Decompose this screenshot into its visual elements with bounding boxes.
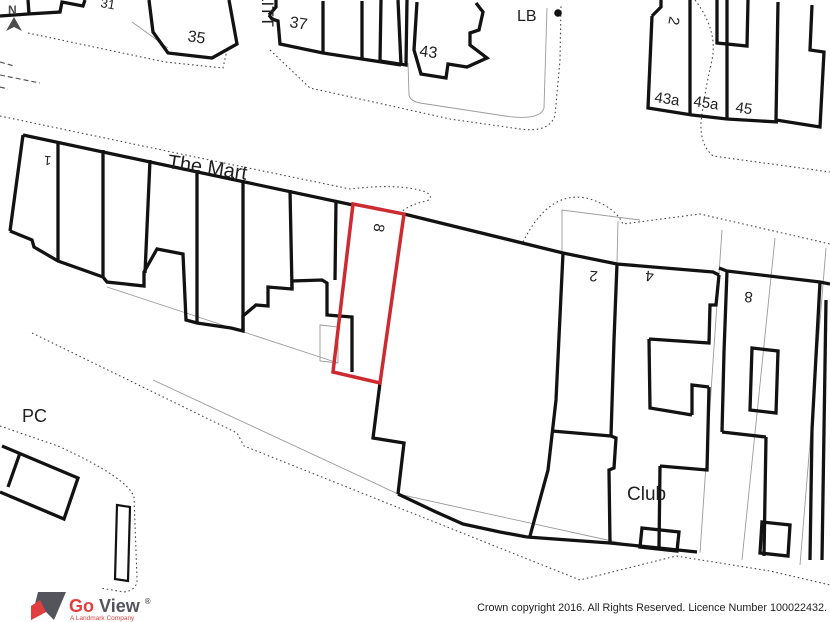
building-label-1: 1 bbox=[43, 153, 52, 169]
building-label-37: 37 bbox=[288, 14, 308, 34]
street-labels: The Mart LITT bbox=[166, 0, 277, 185]
map-labels: 31 35 37 43 LB 2 43a 45a 45 1 8 2 4 8 Cl… bbox=[22, 0, 754, 505]
registered-mark: ® bbox=[145, 597, 151, 606]
narrow-building bbox=[115, 505, 130, 581]
building-label-45: 45 bbox=[734, 99, 753, 118]
north-letter: N bbox=[8, 3, 17, 17]
red-plot-outline bbox=[333, 204, 404, 383]
building-label-45a: 45a bbox=[692, 93, 720, 113]
building-label-4: 4 bbox=[645, 267, 655, 285]
poi-label-lb: LB bbox=[517, 8, 537, 25]
goview-tagline: A Landmark Company bbox=[70, 615, 135, 622]
map-canvas: N The Mart LITT 31 35 37 43 LB 2 43a 45a… bbox=[0, 0, 830, 622]
letter-box-dot bbox=[554, 9, 562, 17]
poi-label-pc: PC bbox=[22, 406, 47, 426]
goview-wordmark: Go View ® bbox=[69, 596, 151, 616]
road-stub-dashed-lines bbox=[0, 62, 40, 89]
red-plot-number: 8 bbox=[369, 222, 387, 233]
poi-label-club: Club bbox=[627, 484, 666, 505]
copyright-text: Crown copyright 2016. All Rights Reserve… bbox=[477, 602, 827, 614]
building-label-2: 2 bbox=[589, 267, 599, 285]
building-label-2-top: 2 bbox=[664, 15, 682, 26]
street-label-the-mart: The Mart bbox=[166, 151, 249, 185]
goview-logo: Go View ® A Landmark Company bbox=[31, 592, 151, 622]
building-label-35: 35 bbox=[186, 28, 206, 48]
building-label-43: 43 bbox=[419, 43, 439, 62]
goview-word-view: View bbox=[99, 596, 141, 616]
building-label-8: 8 bbox=[744, 288, 754, 306]
building-label-43a: 43a bbox=[653, 89, 681, 109]
street-label-little: LITT bbox=[258, 0, 277, 27]
site-plan-map: N The Mart LITT 31 35 37 43 LB 2 43a 45a… bbox=[0, 0, 830, 622]
building-label-31: 31 bbox=[99, 0, 116, 12]
goview-word-go: Go bbox=[69, 596, 94, 616]
